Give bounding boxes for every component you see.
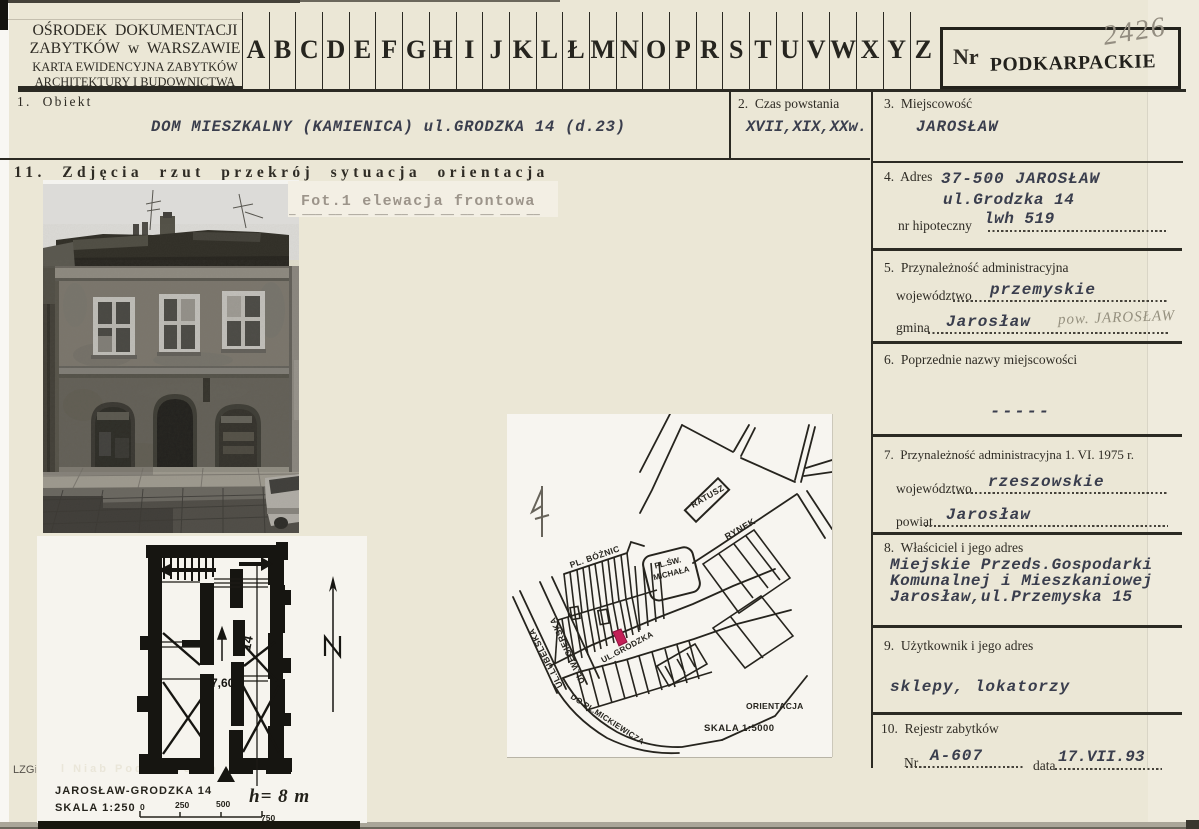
svg-text:RATUSZ: RATUSZ <box>689 483 726 510</box>
svg-text:0: 0 <box>140 802 145 812</box>
svg-text:250: 250 <box>175 800 189 810</box>
svg-text:JAROSŁAW-GRODZKA 14: JAROSŁAW-GRODZKA 14 <box>55 785 212 797</box>
svg-text:h= 8 m: h= 8 m <box>249 786 310 807</box>
svg-text:SKALA 1:5000: SKALA 1:5000 <box>704 723 775 734</box>
svg-text:500: 500 <box>216 799 230 809</box>
svg-text:SKALA 1:250: SKALA 1:250 <box>55 802 136 814</box>
svg-text:14: 14 <box>238 634 256 652</box>
svg-text:7,60: 7,60 <box>211 676 235 690</box>
svg-text:ORIENTACJA: ORIENTACJA <box>746 701 804 711</box>
svg-text:RYNEK: RYNEK <box>723 516 757 541</box>
